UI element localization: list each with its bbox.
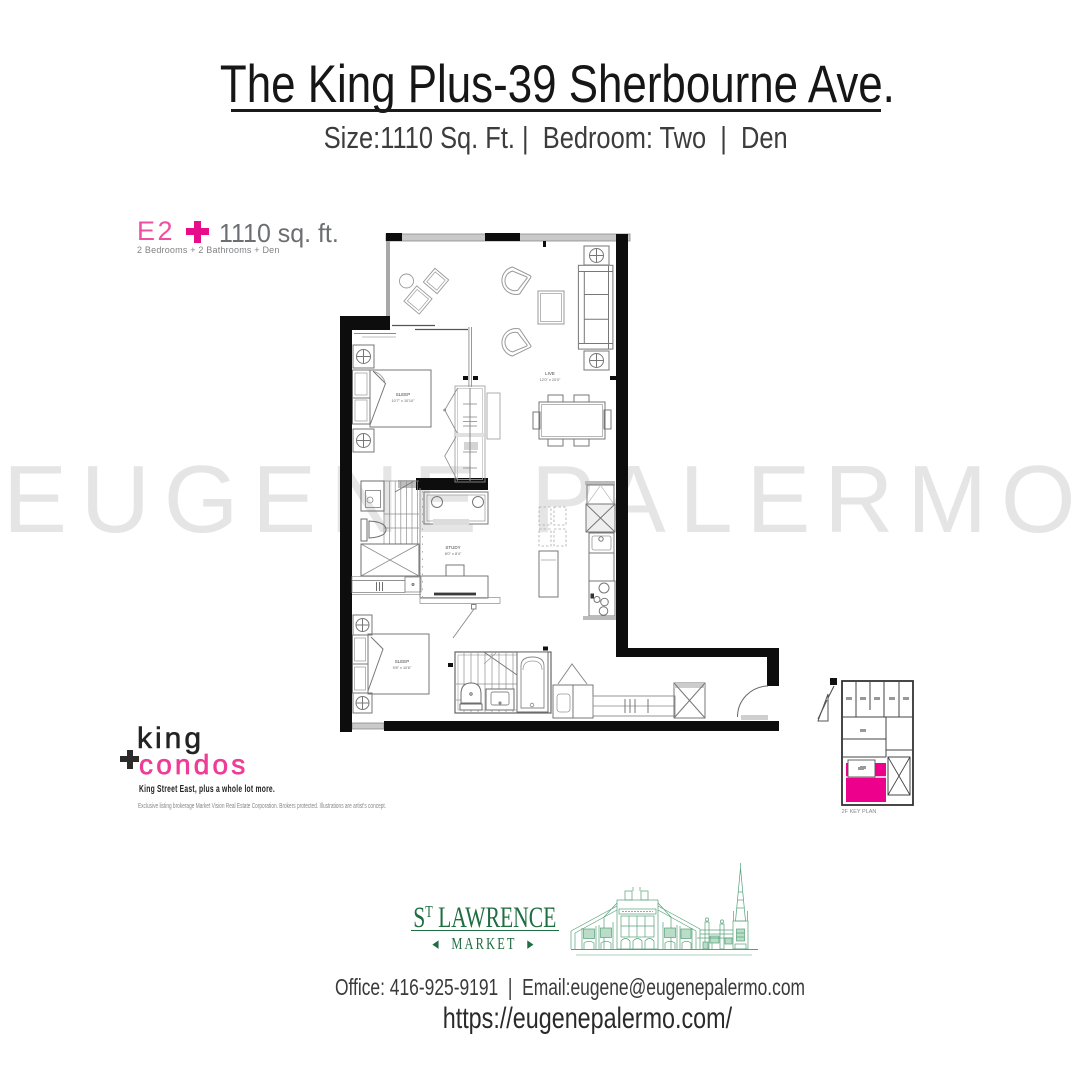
svg-text:10'7" x 10'10": 10'7" x 10'10" xyxy=(392,399,416,403)
svg-text:SLEEP: SLEEP xyxy=(395,659,410,664)
svg-text:8'0" x 8'4": 8'0" x 8'4" xyxy=(445,552,462,556)
svg-text:LIVE: LIVE xyxy=(545,371,555,376)
svg-text:9'8" x 10'6": 9'8" x 10'6" xyxy=(393,666,412,670)
svg-text:12'0" x 20'0": 12'0" x 20'0" xyxy=(540,378,561,382)
svg-text:STUDY: STUDY xyxy=(445,545,460,550)
svg-text:2F KEY PLAN: 2F KEY PLAN xyxy=(842,809,877,815)
svg-text:SLEEP: SLEEP xyxy=(396,392,411,397)
